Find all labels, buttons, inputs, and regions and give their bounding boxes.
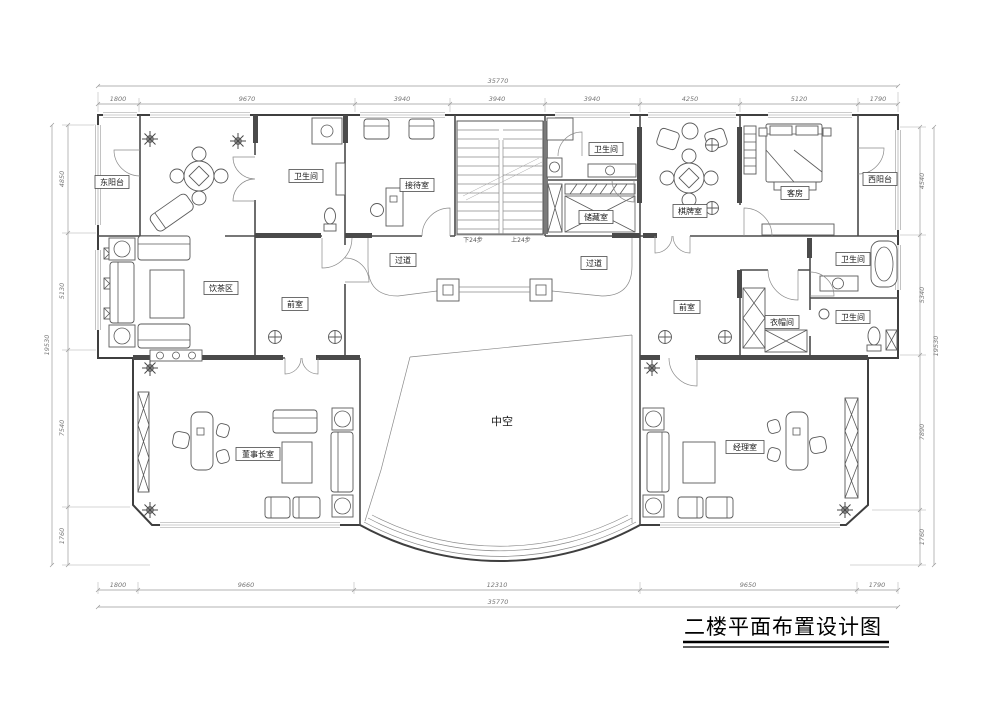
dimension-top: 35770 1800 9670 3940 3940 3940 4250 5120… (96, 77, 900, 112)
dim-right-seg: 7890 (918, 424, 926, 441)
ceiling-light-symbol (659, 331, 672, 344)
corridor-atrium (365, 238, 632, 523)
furniture-ante-rooms (269, 331, 732, 344)
room-label-west-balcony: 西阳台 (863, 173, 897, 186)
svg-text:卫生间: 卫生间 (841, 312, 865, 322)
svg-text:客房: 客房 (787, 188, 803, 198)
furniture-leisure-room (142, 131, 246, 233)
staircase: 下24步 上24步 (457, 121, 543, 244)
dim-bottom-seg: 9660 (238, 581, 255, 589)
dim-left-seg: 4850 (58, 171, 66, 188)
room-label-corridor-left: 过道 (390, 254, 416, 267)
svg-text:经理室: 经理室 (733, 442, 757, 452)
room-label-tea-area: 饮茶区 (204, 282, 238, 295)
dim-right-seg: 1760 (918, 529, 926, 546)
furniture-east-balcony-tea (104, 236, 202, 361)
svg-text:卫生间: 卫生间 (841, 254, 865, 264)
dim-left-total: 19530 (43, 335, 51, 356)
room-label-cloakroom: 衣帽间 (765, 316, 799, 329)
plant-symbol (230, 133, 246, 149)
stairs-down-label: 下24步 (463, 236, 483, 244)
ceiling-light-symbol (719, 331, 732, 344)
furniture-chairman-office (138, 360, 353, 518)
svg-text:西阳台: 西阳台 (868, 174, 892, 184)
desk (191, 412, 213, 470)
svg-text:饮茶区: 饮茶区 (209, 283, 233, 293)
svg-text:卫生间: 卫生间 (294, 171, 318, 181)
desk (786, 412, 808, 470)
furniture-reception (364, 119, 434, 226)
room-label-atrium: 中空 (491, 414, 513, 428)
dim-right-total: 19530 (932, 336, 940, 357)
svg-text:棋牌室: 棋牌室 (678, 206, 702, 216)
ceiling-light-symbol (329, 331, 342, 344)
floor-plan-page: 35770 1800 9670 3940 3940 3940 4250 5120… (0, 0, 1000, 707)
plant-symbol (142, 360, 158, 376)
room-label-manager-office: 经理室 (726, 441, 764, 454)
furniture-manager-office (643, 360, 858, 518)
room-label-storage: 储藏室 (579, 211, 613, 224)
dim-bottom-seg: 9650 (740, 581, 757, 589)
svg-text:接待室: 接待室 (405, 180, 429, 190)
dim-top-seg: 4250 (682, 95, 699, 103)
room-label-guest-room: 客房 (781, 187, 809, 200)
room-label-chairman-office: 董事长室 (236, 448, 280, 461)
dim-top-seg: 3940 (489, 95, 506, 103)
dim-left-seg: 7540 (58, 420, 66, 437)
dim-top-total: 35770 (488, 77, 509, 85)
dim-top-seg: 5120 (791, 95, 808, 103)
dim-right-seg: 4540 (918, 173, 926, 190)
room-label-bath-right-bottom: 卫生间 (836, 311, 870, 324)
dim-left-seg: 5130 (58, 283, 66, 300)
furniture-guest-room (744, 124, 834, 235)
room-label-ante-left: 前室 (282, 298, 308, 311)
dimension-bottom: 1800 9660 12310 9650 1790 35770 (96, 581, 900, 609)
svg-text:前室: 前室 (679, 302, 695, 312)
plant-symbol (644, 360, 660, 376)
room-label-bath-left: 卫生间 (289, 170, 323, 183)
room-label-chess-room: 棋牌室 (673, 205, 707, 218)
svg-text:过道: 过道 (395, 255, 411, 265)
dim-bottom-seg: 1800 (110, 581, 127, 589)
svg-text:储藏室: 储藏室 (584, 212, 608, 222)
room-label-ante-right: 前室 (674, 301, 700, 314)
dim-top-seg: 1800 (110, 95, 127, 103)
room-label-corridor-right: 过道 (581, 257, 607, 270)
ceiling-light-symbol (706, 139, 719, 152)
toilet (868, 327, 880, 345)
svg-text:前室: 前室 (287, 299, 303, 309)
ceiling-light-symbol (269, 331, 282, 344)
stairs-up-label: 上24步 (511, 236, 531, 244)
dim-top-seg: 9670 (239, 95, 256, 103)
svg-text:衣帽间: 衣帽间 (770, 317, 794, 327)
round-table (660, 149, 718, 207)
dim-top-seg: 1790 (870, 95, 887, 103)
furniture-chess-room (656, 123, 729, 215)
dim-bottom-seg: 12310 (487, 581, 508, 589)
svg-text:东阳台: 东阳台 (100, 177, 124, 187)
ceiling-light-symbol (706, 202, 719, 215)
svg-text:过道: 过道 (586, 258, 602, 268)
floor-plan-drawing: 35770 1800 9670 3940 3940 3940 4250 5120… (0, 0, 1000, 707)
plant-symbol (837, 502, 853, 518)
chaise-lounge (148, 192, 195, 233)
dim-right-seg: 5340 (918, 287, 926, 304)
plant-symbol (142, 131, 158, 147)
dim-top-seg: 3940 (584, 95, 601, 103)
dim-top-seg: 3940 (394, 95, 411, 103)
svg-text:董事长室: 董事长室 (242, 449, 274, 459)
dim-bottom-seg: 1790 (869, 581, 886, 589)
dim-left-seg: 1760 (58, 528, 66, 545)
room-label-bath-mid: 卫生间 (589, 143, 623, 156)
room-label-east-balcony: 东阳台 (95, 176, 129, 189)
room-label-reception: 接待室 (400, 179, 434, 192)
room-label-bath-right-top: 卫生间 (836, 253, 870, 266)
svg-text:卫生间: 卫生间 (594, 144, 618, 154)
title-block: 二楼平面布置设计图 (683, 615, 889, 647)
drawing-title: 二楼平面布置设计图 (684, 615, 882, 639)
dim-bottom-total: 35770 (488, 598, 509, 606)
